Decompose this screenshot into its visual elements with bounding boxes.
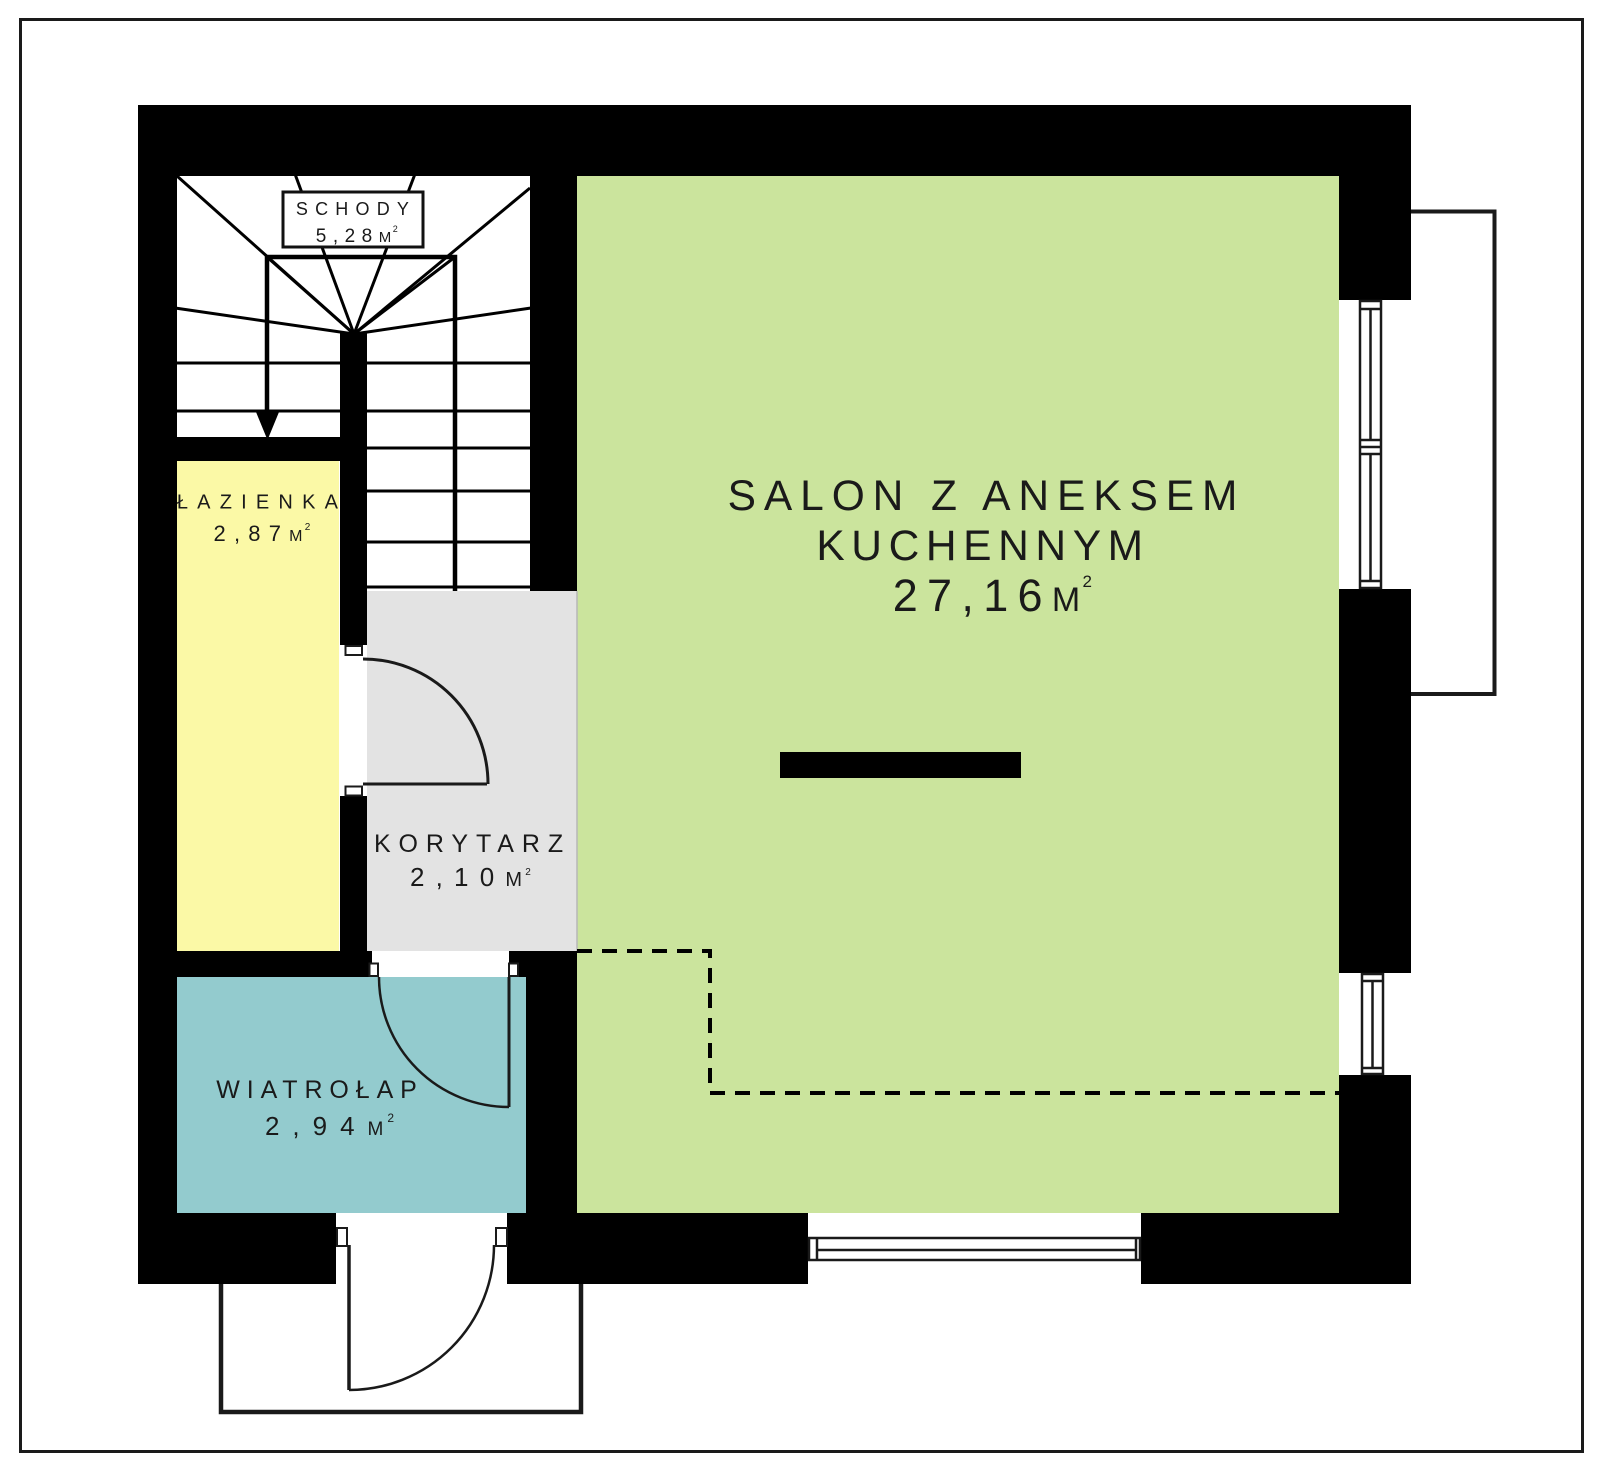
svg-text:KORYTARZ: KORYTARZ	[374, 830, 571, 858]
svg-text:WIATROŁAP: WIATROŁAP	[216, 1076, 424, 1104]
svg-text:ŁAZIENKA: ŁAZIENKA	[177, 492, 347, 514]
svg-text:KUCHENNYM: KUCHENNYM	[816, 523, 1149, 570]
svg-text:SALON Z ANEKSEM: SALON Z ANEKSEM	[728, 473, 1246, 520]
svg-text:SCHODY: SCHODY	[296, 199, 416, 219]
